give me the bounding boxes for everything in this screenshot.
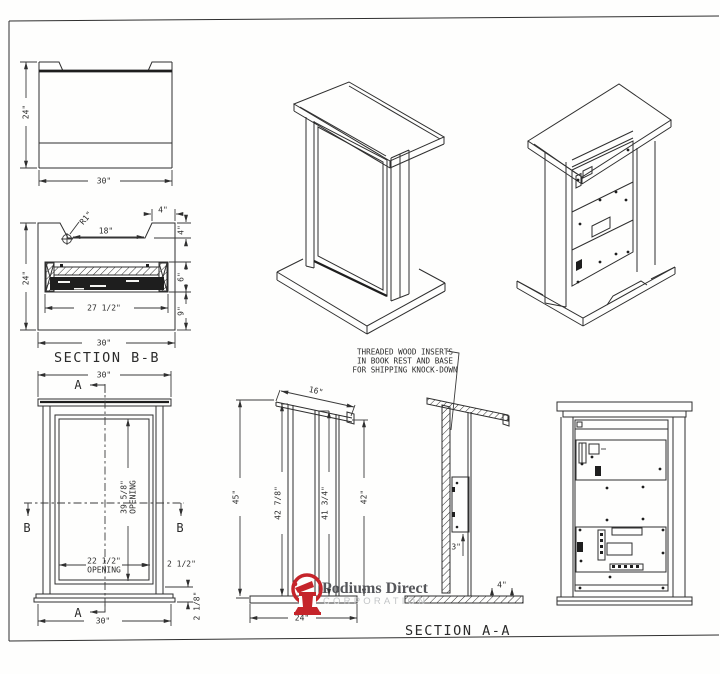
iso-front-panel — [314, 122, 387, 296]
aa-base-edge-text: 4" — [497, 581, 507, 590]
aa-front-height-dim: 42 7/8" — [274, 404, 289, 596]
front-opening-height-dim: 39 5/8" OPENING — [120, 419, 138, 581]
aa-mid-height-text: 41 3/4" — [321, 486, 330, 520]
plan-height-dim: 24" — [20, 62, 37, 168]
view-front: A A B B 30" 39 5/8" OPENING — [23, 371, 201, 627]
bb-radius-text: R1" — [78, 210, 94, 227]
bb-height-dim: 24" — [20, 223, 36, 330]
rear-inner-panel — [575, 420, 668, 591]
iso-front-base — [277, 259, 445, 334]
aa-mid-height-dim: 41 3/4" — [319, 411, 330, 596]
front-stile-dim: 2 1/2" — [143, 560, 196, 569]
bb-shelf-depth-dim: 6" — [169, 262, 191, 292]
bb-shelf-width-dim: 27 1/2" — [45, 294, 168, 313]
iso-rear-bookrest — [528, 84, 671, 184]
front-opening-height-label: OPENING — [129, 480, 138, 514]
aa-overall-height-text: 45" — [232, 490, 241, 504]
bb-ledge-dim: 4" — [144, 206, 183, 222]
aa-bookrest-text: 16" — [308, 385, 324, 397]
iso-front-left-post — [306, 117, 314, 268]
front-stile-text: 2 1/2" — [167, 560, 196, 569]
bb-width-dim: 30" — [38, 332, 175, 348]
logo-name: Podiums Direct — [322, 580, 429, 597]
aa-note-line1: THREADED WOOD INSERTS — [357, 348, 453, 357]
view-rear-elevation — [557, 402, 692, 605]
bb-height-text: 24" — [22, 271, 31, 285]
cut-a-bottom-text: A — [74, 606, 82, 620]
view-iso-front — [277, 82, 445, 334]
bb-width-text: 30" — [97, 339, 111, 348]
bb-shelf-width-text: 27 1/2" — [87, 304, 121, 313]
aa-insert-dim: 3" — [451, 534, 463, 556]
bb-shelf-depth-text: 6" — [177, 272, 186, 282]
logo-subtitle: CORPORATION — [323, 596, 428, 607]
bb-radius-callout: R1" — [61, 210, 94, 245]
aa-note-line2: IN BOOK REST AND BASE — [357, 357, 453, 366]
iso-front-right-post — [391, 150, 409, 301]
plan-width-dim: 30" — [39, 170, 172, 186]
aa-base-edge-dim: 4" — [492, 581, 512, 597]
aa-front-height-text: 42 7/8" — [274, 486, 283, 520]
view-section-bb: R1" 18" 4" 4" 24" 6" — [20, 206, 191, 367]
aa-note-line3: FOR SHIPPING KNOCK-DOWN — [352, 366, 458, 375]
iso-rear-screws — [577, 149, 630, 284]
section-aa-title: SECTION A-A — [405, 623, 511, 639]
logo: Podiums Direct CORPORATION — [293, 575, 429, 615]
front-cut-a-top: A — [74, 378, 105, 393]
plan-width-text: 30" — [97, 177, 111, 186]
bb-ledge-text: 4" — [158, 206, 168, 215]
plan-outline — [39, 62, 172, 168]
podium-technical-drawing: 24" 30" R1" — [0, 0, 720, 674]
front-top-width-dim: 30" — [38, 371, 171, 398]
iso-front-bookrest — [294, 82, 444, 168]
front-opening-width-dim: 22 1/2" OPENING — [59, 557, 149, 575]
bb-lower-height-text: 9" — [177, 306, 186, 316]
aa-rear-height-text: 42" — [360, 490, 369, 504]
iso-rear-base — [517, 267, 675, 326]
rear-cap — [557, 402, 692, 417]
cut-b-left-text: B — [23, 521, 30, 535]
front-opening-height-text: 39 5/8" — [120, 480, 129, 514]
aa-right-section: 3" 4" — [405, 398, 523, 603]
aa-insert-text: 3" — [451, 543, 461, 552]
front-opening-width-label: OPENING — [87, 566, 121, 575]
aa-rear-height-dim: 42" — [352, 420, 369, 596]
bb-lower-height-dim: 9" — [177, 292, 192, 330]
front-bottom-width-dim: 30" — [38, 604, 171, 626]
plan-height-text: 24" — [22, 105, 31, 119]
front-base-height-dim: 2 1/8" — [165, 580, 202, 620]
aa-overall-height-dim: 45" — [232, 400, 275, 598]
view-iso-rear — [517, 84, 675, 326]
bb-shelf — [45, 262, 168, 292]
front-opening-width-text: 22 1/2" — [87, 557, 121, 566]
view-plan: 24" 30" — [20, 62, 172, 186]
iso-rear-back-panel — [572, 131, 633, 286]
bb-notch-depth-text: 4" — [177, 225, 186, 235]
cut-b-right-text: B — [176, 521, 183, 535]
front-bottom-width-text: 30" — [96, 617, 110, 626]
bb-notch-width-text: 18" — [99, 227, 113, 236]
front-base-height-text: 2 1/8" — [193, 592, 202, 621]
rear-screws — [579, 456, 665, 590]
front-top-width-text: 30" — [97, 371, 111, 380]
bb-notch-depth-dim: 4" — [154, 215, 191, 246]
bb-outline — [38, 223, 175, 330]
front-cut-b-left: B — [23, 503, 30, 535]
bb-notch-width-dim: 18" — [73, 227, 144, 238]
rear-base — [557, 597, 692, 605]
front-cut-b-right: B — [176, 503, 183, 535]
cut-a-top-text: A — [74, 378, 82, 392]
section-bb-title: SECTION B-B — [54, 350, 160, 366]
